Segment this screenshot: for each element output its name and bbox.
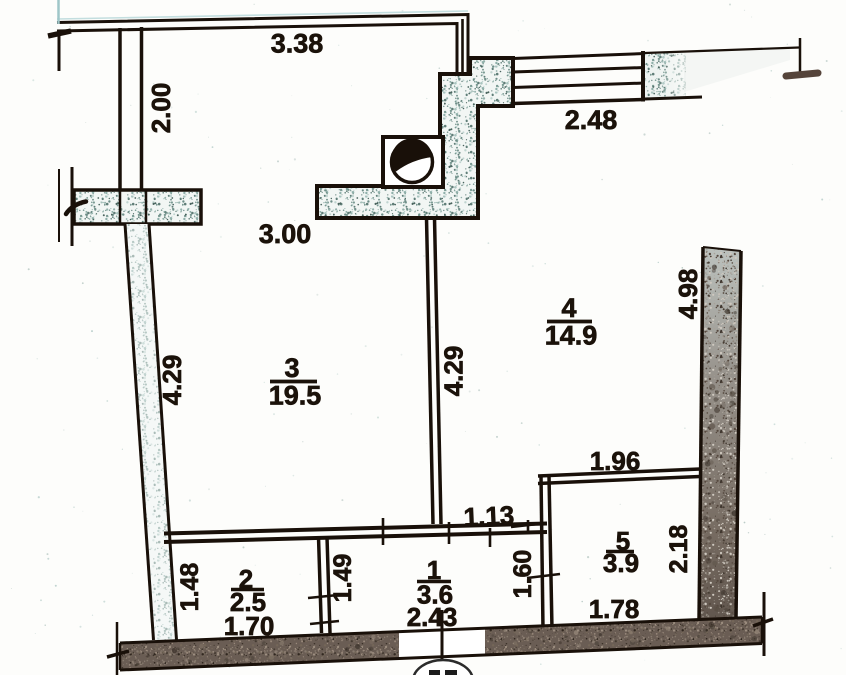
svg-text:4.29: 4.29: [439, 346, 469, 397]
svg-text:3.9: 3.9: [603, 548, 639, 578]
svg-text:14.9: 14.9: [545, 321, 598, 351]
svg-text:4.29: 4.29: [157, 355, 187, 406]
svg-text:3.38: 3.38: [271, 29, 324, 59]
svg-text:2.48: 2.48: [565, 105, 618, 135]
svg-text:1.48: 1.48: [176, 563, 204, 612]
svg-text:3: 3: [284, 353, 299, 383]
svg-text:1.60: 1.60: [509, 550, 537, 599]
svg-text:2.43: 2.43: [407, 602, 458, 632]
svg-text:3.00: 3.00: [259, 219, 312, 249]
svg-text:1.49: 1.49: [329, 554, 357, 603]
svg-text:1.96: 1.96: [590, 446, 641, 476]
svg-text:4: 4: [561, 293, 576, 323]
svg-text:2.00: 2.00: [146, 83, 176, 134]
svg-text:2.18: 2.18: [665, 525, 693, 574]
svg-text:1.78: 1.78: [589, 594, 640, 624]
svg-text:4.98: 4.98: [673, 269, 703, 320]
svg-text:1.13: 1.13: [463, 500, 515, 532]
svg-text:19.5: 19.5: [269, 381, 322, 411]
